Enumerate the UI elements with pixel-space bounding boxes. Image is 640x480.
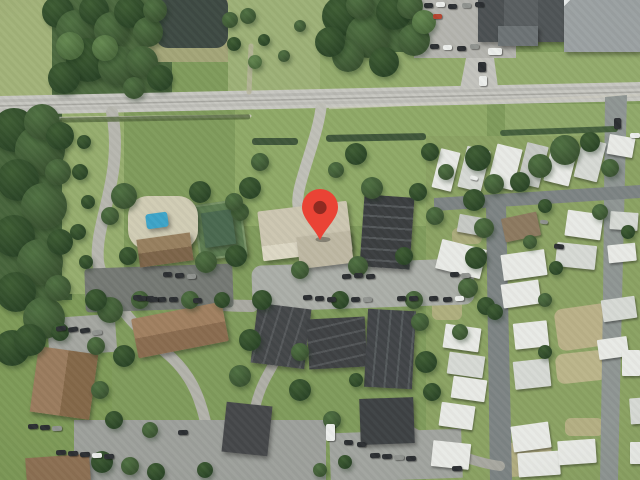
vehicle [455, 296, 464, 301]
tree-canopy [550, 135, 580, 165]
commercial-roof-mid [498, 26, 538, 46]
tree-canopy [189, 181, 211, 203]
mobile-home-roof [431, 440, 472, 470]
vehicle [56, 450, 66, 455]
pin-shadow [316, 237, 331, 242]
vehicle [136, 296, 146, 301]
vehicle [452, 466, 462, 471]
vehicle [354, 273, 363, 278]
vehicle [424, 3, 433, 8]
swimming-pool [145, 212, 169, 230]
tree-canopy [258, 34, 270, 46]
vehicle [450, 272, 459, 277]
apartment-roof [359, 397, 415, 445]
vehicle [614, 118, 621, 129]
tree-canopy [549, 261, 563, 275]
vehicle [28, 424, 38, 429]
vehicle [429, 296, 438, 301]
tree-canopy [14, 324, 46, 356]
mobile-home-roof [629, 398, 640, 425]
tree-canopy [409, 183, 427, 201]
vehicle [80, 452, 90, 457]
tree-canopy [197, 462, 213, 478]
mobile-home-roof [601, 296, 638, 323]
vehicle [326, 424, 335, 441]
vehicle [40, 425, 50, 430]
mobile-home-roof [622, 350, 640, 376]
tree-canopy [56, 32, 84, 60]
tree-canopy [252, 290, 272, 310]
vehicle [394, 455, 404, 460]
vehicle [370, 453, 380, 458]
vehicle [344, 440, 353, 445]
tree-canopy [225, 193, 243, 211]
tree-canopy [592, 204, 608, 220]
hedge-row [500, 126, 618, 136]
mobile-home-roof [510, 421, 551, 452]
tree-canopy [328, 162, 344, 178]
tree-canopy [229, 365, 251, 387]
vehicle [448, 4, 457, 9]
mobile-home-roof [438, 402, 475, 430]
tree-canopy [538, 293, 552, 307]
pin-dot [313, 201, 326, 214]
clubhouse-roof [136, 232, 193, 267]
vehicle [540, 220, 548, 225]
vehicle [351, 297, 360, 302]
vehicle [397, 296, 406, 301]
vehicle [342, 274, 351, 279]
tree-canopy [369, 47, 399, 77]
tree-canopy [487, 304, 503, 320]
tree-canopy [463, 189, 485, 211]
vehicle [315, 296, 324, 301]
tree-canopy [222, 12, 238, 28]
tree-canopy [349, 373, 363, 387]
mobile-home-roof [501, 279, 542, 308]
tree-canopy [395, 247, 413, 265]
tree-canopy [421, 143, 439, 161]
vehicle [104, 454, 114, 459]
tree-canopy [426, 207, 444, 225]
tree-canopy [142, 422, 158, 438]
tree-canopy [438, 164, 454, 180]
tree-canopy [538, 199, 552, 213]
mobile-home-roof [500, 249, 547, 281]
mobile-home-roof [557, 439, 597, 466]
hedge-row [326, 133, 426, 142]
vehicle [363, 297, 372, 302]
tree-canopy [291, 261, 309, 279]
tree-canopy [452, 324, 468, 340]
apartment-roof [364, 309, 416, 389]
tree-canopy [48, 62, 80, 94]
tree-canopy [538, 345, 552, 359]
vehicle [193, 298, 202, 303]
tree-canopy [227, 37, 241, 51]
tree-canopy [239, 329, 261, 351]
tree-canopy [294, 20, 306, 32]
tree-canopy [338, 455, 352, 469]
commercial-roof-light [564, 0, 640, 52]
mobile-home-roof [517, 451, 561, 478]
vehicle [366, 274, 375, 279]
tree-canopy [423, 383, 441, 401]
vehicle [406, 456, 416, 461]
vehicle [479, 76, 487, 86]
pin-body [302, 189, 338, 240]
tree-canopy [361, 177, 383, 199]
tree-canopy [248, 55, 262, 69]
vehicle [630, 133, 640, 138]
vehicle [157, 297, 166, 302]
tree-canopy [70, 224, 86, 240]
vehicle [430, 44, 439, 49]
vehicle [470, 44, 479, 49]
vehicle [163, 272, 172, 277]
tree-canopy [85, 289, 107, 311]
tree-canopy [87, 337, 105, 355]
tree-canopy [484, 174, 504, 194]
tree-canopy [315, 27, 345, 57]
tree-canopy [123, 77, 145, 99]
tree-canopy [105, 411, 123, 429]
mobile-home-roof [607, 243, 637, 264]
tree-canopy [278, 50, 290, 62]
mobile-home-roof [451, 376, 488, 403]
tree-canopy [147, 463, 165, 480]
vehicle [457, 46, 466, 51]
tree-canopy [143, 0, 167, 22]
vehicle [92, 453, 102, 458]
vehicle [303, 295, 312, 300]
hedge-row [252, 138, 298, 145]
tree-canopy [101, 207, 119, 225]
tree-canopy [147, 65, 173, 91]
tree-canopy [415, 351, 437, 373]
tree-canopy [133, 17, 163, 47]
mobile-home-roof [447, 352, 486, 379]
vehicle [357, 442, 366, 447]
tree-canopy [474, 218, 494, 238]
tree-canopy [510, 172, 530, 192]
vehicle [443, 45, 452, 50]
tree-canopy [72, 164, 88, 180]
tree-canopy [214, 292, 230, 308]
tree-canopy [621, 225, 635, 239]
tree-canopy [119, 247, 137, 265]
vehicle [443, 297, 452, 302]
vehicle [175, 273, 184, 278]
location-pin-icon[interactable] [298, 188, 342, 244]
vehicle [409, 296, 418, 301]
tree-canopy [111, 183, 137, 209]
tree-canopy [91, 381, 109, 399]
vehicle [68, 451, 78, 456]
tree-canopy [46, 122, 74, 150]
tree-canopy [79, 255, 93, 269]
satellite-map[interactable] [0, 0, 640, 480]
tree-canopy [289, 379, 311, 401]
tree-canopy [313, 463, 327, 477]
tree-canopy [411, 313, 429, 331]
vehicle [169, 297, 178, 302]
tree-canopy [45, 275, 71, 301]
tree-canopy [251, 153, 269, 171]
tree-canopy [81, 195, 95, 209]
fence-brush-line [60, 114, 250, 122]
vehicle [488, 48, 502, 55]
tree-canopy [195, 251, 217, 273]
tree-canopy [412, 10, 436, 34]
vehicle [554, 243, 564, 249]
vehicle [433, 14, 442, 19]
tree-canopy [240, 8, 256, 24]
vehicle [178, 430, 188, 435]
vehicle [475, 2, 484, 7]
tree-canopy [580, 132, 600, 152]
tree-canopy [523, 235, 537, 249]
vehicle [461, 273, 470, 278]
tree-canopy [528, 154, 552, 178]
tree-canopy [77, 135, 91, 149]
vehicle [436, 2, 445, 7]
vehicle [382, 454, 392, 459]
brown-condo-roof [30, 346, 99, 420]
brown-condo-roof [25, 454, 91, 480]
vehicle [148, 297, 158, 302]
vehicle [52, 426, 62, 431]
tree-canopy [45, 159, 71, 185]
tree-canopy [601, 159, 619, 177]
apartment-roof [222, 402, 273, 457]
vehicle [478, 62, 486, 72]
vehicle [327, 297, 336, 302]
vehicle [187, 274, 196, 279]
tree-canopy [345, 143, 367, 165]
tree-canopy [465, 145, 491, 171]
apartment-roof [307, 317, 368, 370]
tree-canopy [121, 457, 139, 475]
tree-canopy [113, 345, 135, 367]
mobile-home-roof [513, 358, 552, 390]
tree-canopy [465, 247, 487, 269]
tree-canopy [92, 35, 118, 61]
vehicle [462, 3, 471, 8]
tree-canopy [239, 177, 261, 199]
tree-canopy [225, 245, 247, 267]
mobile-home-roof [630, 442, 640, 464]
tree-canopy [291, 343, 309, 361]
